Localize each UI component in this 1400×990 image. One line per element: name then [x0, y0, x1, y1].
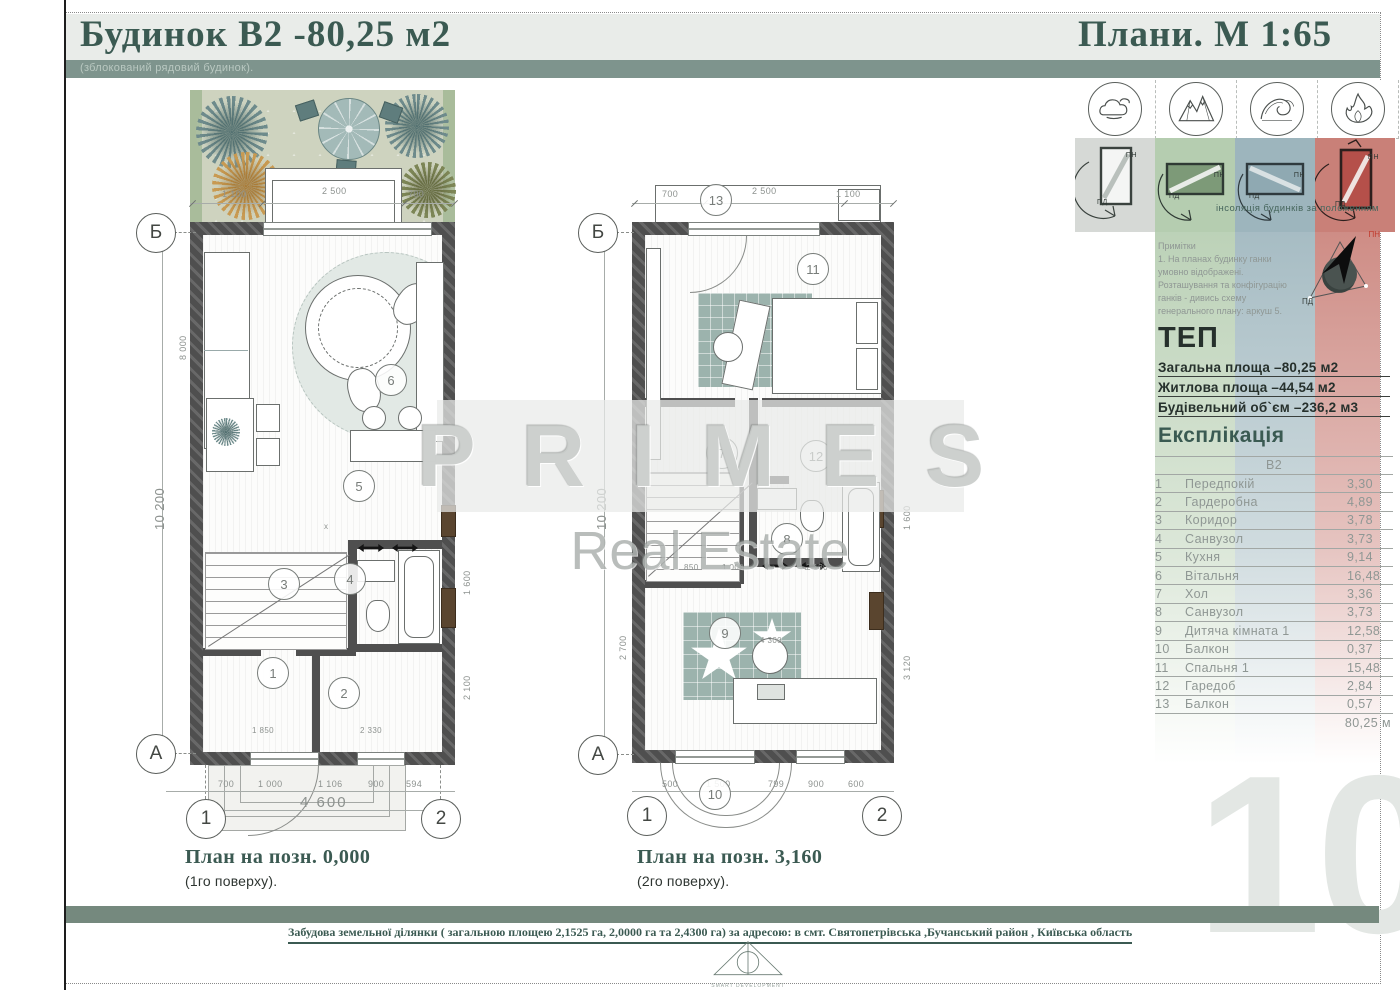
room-number-circle: 9 — [709, 617, 741, 649]
dim-line — [190, 203, 455, 204]
row-num: 12 — [1155, 679, 1185, 693]
header-subtitle-band — [66, 60, 1380, 78]
dim-label: 600 — [848, 779, 864, 789]
dim-label: 700 — [218, 779, 234, 789]
dim-label: 10 200 — [152, 488, 167, 530]
partition-wall — [348, 644, 442, 652]
watermark-band: PRIMES — [437, 400, 964, 512]
axis-line — [616, 754, 634, 755]
tep-line: Будівельний об`єм –236,2 м3 — [1158, 400, 1390, 417]
compass-north-label: ПН — [1368, 230, 1380, 239]
window — [796, 750, 845, 764]
dim-label: 1 100 — [222, 189, 247, 199]
icon-cell — [1075, 80, 1156, 139]
row-num: 9 — [1155, 624, 1185, 638]
axis-col-1: 1 — [186, 799, 226, 839]
notes-block: Примітки 1. На планах будинку ганки умов… — [1158, 240, 1314, 318]
entry-door — [250, 752, 319, 766]
row-area: 4,89 — [1347, 495, 1393, 509]
row-area: 3,73 — [1347, 605, 1393, 619]
partition-wall — [348, 540, 357, 652]
dim-label: 900 — [808, 779, 824, 789]
closet-marker: x — [324, 522, 328, 531]
row-area: 15,48 — [1347, 661, 1393, 675]
sofa-seam — [204, 350, 248, 351]
compass-north-label: ПН — [1294, 172, 1305, 179]
explication-column-header: В2 — [1155, 456, 1393, 475]
room-number-circle: 6 — [375, 364, 407, 396]
axis-line — [205, 765, 206, 799]
axis-row-a: А — [578, 735, 618, 775]
axis-line — [174, 232, 196, 233]
patio-table — [318, 98, 380, 160]
plan1-caption-sub: (1го поверху). — [185, 873, 277, 889]
wave-icon — [1250, 82, 1304, 136]
icon-cell — [1156, 80, 1237, 139]
plan2-caption: План на позн. 3,160 — [637, 846, 822, 869]
compass-north-label: ПН — [1368, 154, 1379, 161]
row-area: 16,48 — [1347, 569, 1393, 583]
desk-chair — [256, 404, 280, 432]
watermark-brand: PRIMES — [371, 412, 1030, 500]
row-name: Спальня 1 — [1185, 661, 1347, 675]
desk-chair — [256, 438, 280, 466]
shaft — [441, 588, 456, 628]
axis-line — [440, 765, 441, 799]
shaft — [869, 592, 884, 630]
axis-line — [174, 753, 196, 754]
row-area: 3,78 — [1347, 513, 1393, 527]
plant-icon — [212, 418, 240, 446]
dim-label: 2 330 — [360, 726, 382, 735]
plant-icon — [385, 94, 449, 158]
dim-total-label: 4 600 — [300, 794, 348, 811]
dim-label: 3 120 — [902, 655, 912, 680]
plan2-caption-sub: (2го поверху). — [637, 873, 729, 889]
room-number-circle: 3 — [268, 568, 300, 600]
compass-north-label: ПН — [1214, 172, 1225, 179]
pillow — [856, 302, 878, 344]
explication-total: 80,25 м — [1155, 714, 1393, 732]
cloud-icon — [1088, 82, 1142, 136]
footer-bar — [66, 906, 1379, 923]
table-row: 13Балкон0,57 — [1155, 696, 1393, 714]
page-title: Будинок В2 -80,25 м2 — [80, 13, 451, 56]
desk — [733, 678, 877, 724]
tep-line: Житлова площа –44,54 м2 — [1158, 380, 1390, 397]
row-area: 0,57 — [1347, 697, 1393, 711]
row-name: Хол — [1185, 587, 1347, 601]
dim-label: 1 850 — [252, 726, 274, 735]
orientation-tile-west: ПН ПД — [1075, 138, 1155, 232]
compass-north-label: ПН — [1126, 152, 1137, 159]
table-row: 2Гардеробна4,89 — [1155, 493, 1393, 511]
icon-cell — [1318, 80, 1399, 139]
sheet-number: 10 — [1196, 742, 1400, 967]
row-num: 3 — [1155, 513, 1185, 527]
developer-logo-label: SMART DEVELOPMENT — [700, 983, 796, 989]
room-number-circle: 4 — [334, 563, 366, 595]
table-row: 6Вітальня16,48 — [1155, 567, 1393, 585]
dim-label: 2 700 — [618, 635, 628, 660]
row-name: Гардеробна — [1185, 495, 1347, 509]
insolation-caption: інсоляція будинків за положенням — [1155, 203, 1379, 214]
compass-south-label: ПД — [1169, 193, 1180, 200]
table-row: 12Гаредоб2,84 — [1155, 677, 1393, 695]
room-number-circle: 10 — [699, 778, 731, 810]
dim-label: 500 — [662, 779, 678, 789]
row-name: Вітальня — [1185, 569, 1347, 583]
row-num: 13 — [1155, 697, 1185, 711]
dim-label: 1 106 — [318, 779, 343, 789]
balcony-door — [675, 750, 755, 764]
row-name: Балкон — [1185, 697, 1347, 711]
axis-col-1: 1 — [627, 796, 667, 836]
flame-icon — [1331, 82, 1385, 136]
bathtub-inner — [404, 556, 434, 638]
table-row: 8Санвузол3,73 — [1155, 604, 1393, 622]
row-num: 11 — [1155, 661, 1185, 675]
desk-chair — [713, 332, 743, 362]
row-area: 2,84 — [1347, 679, 1393, 693]
toilet — [366, 600, 390, 632]
room-number-circle: 2 — [328, 677, 360, 709]
row-num: 8 — [1155, 605, 1185, 619]
dim-label: 1 000 — [258, 779, 283, 789]
laptop — [757, 684, 785, 700]
dim-label: 900 — [368, 779, 384, 789]
scale-title: Плани. М 1:65 — [1078, 13, 1332, 56]
mountains-icon — [1169, 82, 1223, 136]
table-row: 7Хол3,36 — [1155, 585, 1393, 603]
icon-cell — [1237, 80, 1318, 139]
row-name: Гаредоб — [1185, 679, 1347, 693]
row-num: 10 — [1155, 642, 1185, 656]
row-area: 9,14 — [1347, 550, 1393, 564]
dim-label: 1 100 — [836, 189, 861, 199]
window — [357, 752, 405, 766]
row-name: Передпокій — [1185, 477, 1347, 491]
dim-label: 799 — [768, 779, 784, 789]
row-area: 3,30 — [1347, 477, 1393, 491]
room-number-circle: 1 — [257, 657, 289, 689]
dining-table-decor — [318, 288, 398, 368]
balcony-door — [688, 222, 820, 236]
window — [263, 222, 432, 236]
row-name: Коридор — [1185, 513, 1347, 527]
room-number-circle: 11 — [797, 253, 829, 285]
explication-table: В2 1Передпокій3,30 2Гардеробна4,89 3Кори… — [1155, 456, 1393, 732]
compass-south-label: ПД — [1097, 199, 1108, 206]
axis-row-b: Б — [578, 213, 618, 253]
axis-row-b: Б — [136, 213, 176, 253]
axis-line — [616, 232, 634, 233]
dim-line — [632, 203, 894, 204]
dim-line — [166, 791, 455, 792]
watermark-subtitle: Real Estate — [460, 520, 960, 582]
plan-sheet: Будинок В2 -80,25 м2 Плани. М 1:65 (збло… — [0, 0, 1400, 990]
table-row: 3Коридор3,78 — [1155, 512, 1393, 530]
dim-label: 594 — [406, 779, 422, 789]
orientation-tile-north: ПН ПД — [1155, 138, 1235, 232]
orientation-tile-south: ПН ПД — [1315, 138, 1395, 232]
table-row: 5Кухня9,14 — [1155, 549, 1393, 567]
row-name: Кухня — [1185, 550, 1347, 564]
plan1-caption: План на позн. 0,000 — [185, 846, 370, 869]
row-area: 12,58 — [1347, 624, 1393, 638]
dim-label: 4 300 — [760, 636, 782, 645]
room-number-circle: 13 — [700, 184, 732, 216]
row-area: 0,37 — [1347, 642, 1393, 656]
row-area: 3,73 — [1347, 532, 1393, 546]
axis-col-2: 2 — [862, 796, 902, 836]
dim-label: 2 500 — [752, 186, 777, 196]
axis-col-2: 2 — [421, 799, 461, 839]
row-name: Санвузол — [1185, 605, 1347, 619]
dim-label: 700 — [408, 189, 424, 199]
row-name: Санвузол — [1185, 532, 1347, 546]
explication-heading: Експлікація — [1158, 424, 1284, 448]
row-name: Балкон — [1185, 642, 1347, 656]
row-num: 6 — [1155, 569, 1185, 583]
row-name: Дитяча кімната 1 — [1185, 624, 1347, 638]
partition-wall — [312, 656, 320, 752]
developer-logo: SMART DEVELOPMENT — [700, 940, 796, 989]
tep-lines: Загальна площа –80,25 м2 Житлова площа –… — [1158, 360, 1390, 420]
tep-line: Загальна площа –80,25 м2 — [1158, 360, 1390, 377]
nature-icons-row — [1075, 80, 1399, 139]
axis-row-a: А — [136, 734, 176, 774]
row-num: 5 — [1155, 550, 1185, 564]
compass-south-label: ПД — [1249, 193, 1260, 200]
tep-heading: ТЕП — [1158, 322, 1219, 355]
row-area: 3,36 — [1347, 587, 1393, 601]
table-row: 9Дитяча кімната 112,58 — [1155, 622, 1393, 640]
table-row: 10Балкон0,37 — [1155, 641, 1393, 659]
orientation-tile-east: ПН ПД — [1235, 138, 1315, 232]
row-num: 2 — [1155, 495, 1185, 509]
dim-label: 700 — [662, 189, 678, 199]
table-row: 4Санвузол3,73 — [1155, 530, 1393, 548]
page-subtitle: (зблокований рядовий будинок). — [80, 62, 254, 74]
row-num: 4 — [1155, 532, 1185, 546]
pillow — [856, 348, 878, 390]
dim-line — [632, 791, 894, 792]
compass-south-label: ПД — [1302, 297, 1313, 306]
row-num: 7 — [1155, 587, 1185, 601]
dim-label: 8 000 — [178, 335, 188, 360]
dim-label: 2 500 — [322, 186, 347, 196]
dim-label: 2 100 — [462, 675, 472, 700]
table-row: 1Передпокій3,30 — [1155, 475, 1393, 493]
row-num: 1 — [1155, 477, 1185, 491]
orientation-tiles-row: ПН ПД ПН ПД ПН ПД — [1075, 138, 1395, 232]
table-row: 11Спальня 115,48 — [1155, 659, 1393, 677]
north-compass: ПН ПД — [1296, 228, 1380, 320]
